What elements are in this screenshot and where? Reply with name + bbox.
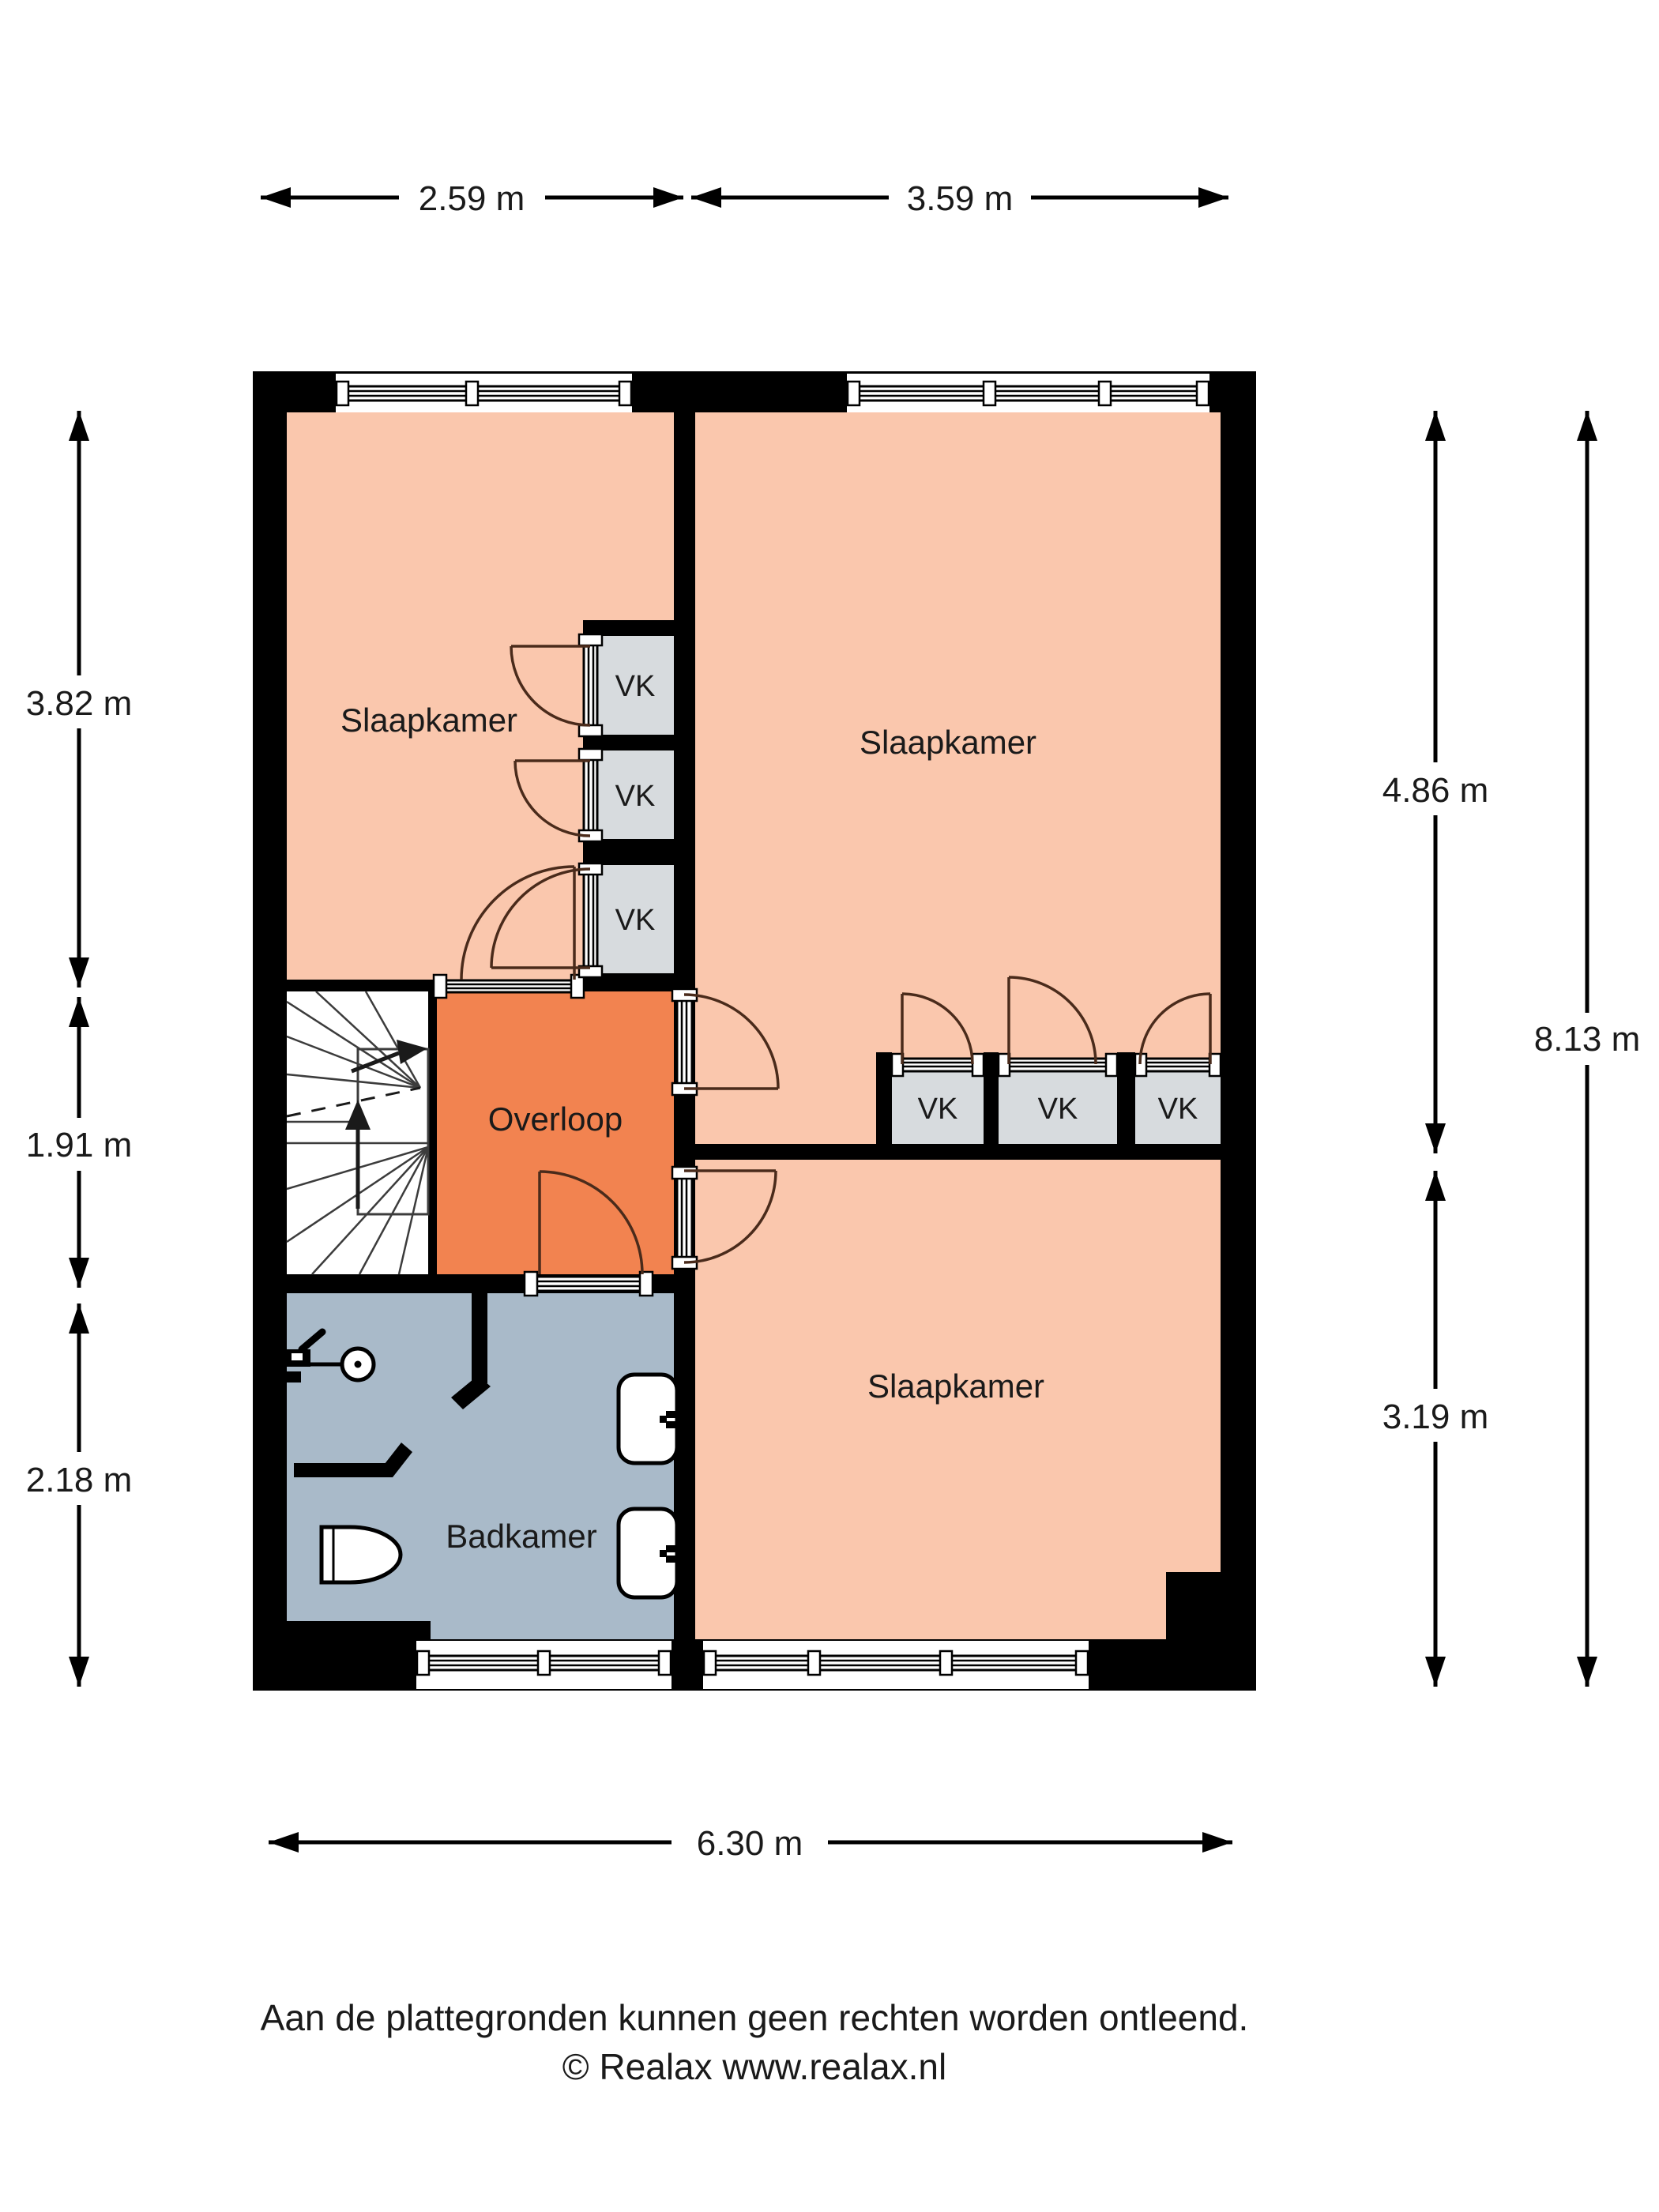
dim-label-left-lower: 2.18 m <box>26 1461 133 1499</box>
dim-label-top-left: 2.59 m <box>419 179 525 218</box>
wall-closet-row-stub <box>876 1052 892 1145</box>
wall-bottom-right-notch <box>1166 1572 1256 1691</box>
toilet-icon <box>322 1527 401 1582</box>
dim-label-top-right: 3.59 m <box>907 179 1014 218</box>
closet-label-left-3: VK <box>615 904 656 937</box>
closet-label-right-1: VK <box>918 1093 958 1126</box>
dim-label-bottom: 6.30 m <box>697 1824 803 1863</box>
room-label-bath: Badkamer <box>446 1518 596 1555</box>
closet-label-right-3: VK <box>1158 1093 1198 1126</box>
footer-copyright: © Realax www.realax.nl <box>562 2046 946 2087</box>
dim-label-right-upper: 4.86 m <box>1382 771 1489 810</box>
wall-closet-row-sep2 <box>1117 1052 1135 1145</box>
floorplan-drawing: Slaapkamer Slaapkamer Slaapkamer Overloo… <box>0 0 1659 2212</box>
sink-icon <box>619 1509 677 1597</box>
door-frame-hall-bath <box>525 1272 653 1296</box>
wall-closet-row-sep1 <box>984 1052 999 1145</box>
window-top-right <box>847 374 1209 412</box>
dim-label-left-upper: 3.82 m <box>26 684 133 723</box>
room-label-hall: Overloop <box>488 1100 623 1138</box>
door-frame-bedroom2 <box>672 989 697 1095</box>
dim-label-right-lower: 3.19 m <box>1382 1398 1489 1436</box>
footer-disclaimer: Aan de plattegronden kunnen geen rechten… <box>261 1997 1249 2038</box>
closet-label-left-1: VK <box>615 670 656 703</box>
room-bedroom-topright-floor <box>695 412 1221 1144</box>
floorplan-page: Slaapkamer Slaapkamer Slaapkamer Overloo… <box>0 0 1659 2212</box>
window-bottom-bath <box>416 1641 671 1689</box>
window-bottom-bedroom <box>703 1641 1089 1689</box>
dim-label-right-total: 8.13 m <box>1534 1020 1641 1059</box>
dim-label-left-middle: 1.91 m <box>26 1126 133 1164</box>
sink-icon <box>619 1375 677 1463</box>
room-label-bedroom-topright: Slaapkamer <box>860 724 1036 761</box>
closet-label-left-2: VK <box>615 780 656 813</box>
door-frame-bedroom3 <box>672 1167 697 1269</box>
closet-label-right-2: VK <box>1038 1093 1078 1126</box>
room-label-bedroom-bottomright: Slaapkamer <box>867 1367 1044 1405</box>
window-top-left <box>336 374 632 412</box>
wall-bottom-left-block <box>253 1621 431 1691</box>
wall-closet-col-sep2 <box>583 839 674 865</box>
room-label-bedroom-topleft: Slaapkamer <box>340 702 517 739</box>
